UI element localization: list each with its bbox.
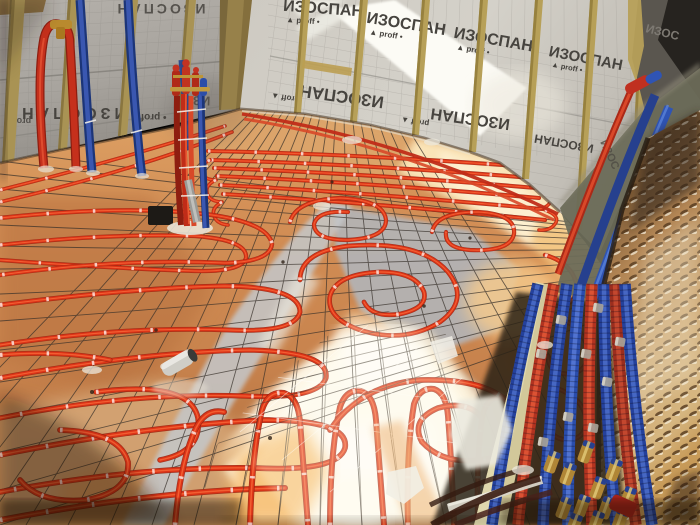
svg-text:• proff: • proff [137,111,167,122]
